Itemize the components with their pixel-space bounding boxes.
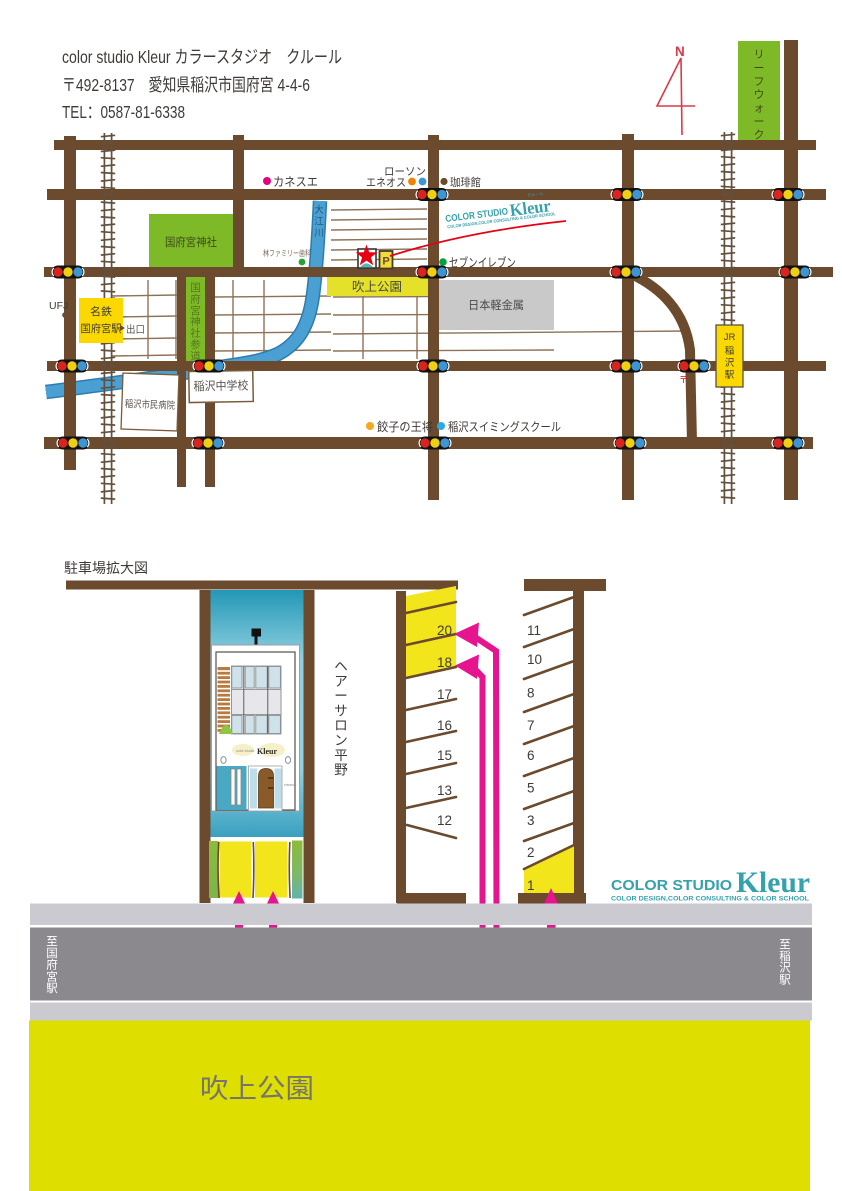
- svg-text:3: 3: [527, 813, 535, 828]
- svg-text:N: N: [675, 44, 685, 59]
- svg-text:日本軽金属: 日本軽金属: [468, 298, 524, 312]
- svg-text:ン: ン: [334, 733, 348, 748]
- svg-text:府: 府: [46, 958, 58, 972]
- svg-text:entrance: entrance: [284, 783, 297, 787]
- svg-text:稲: 稲: [725, 345, 735, 357]
- svg-text:〒492-8137 愛知県稲沢市国府宮 4-4-6: 〒492-8137 愛知県稲沢市国府宮 4-4-6: [62, 75, 310, 95]
- svg-text:稲沢中学校: 稲沢中学校: [193, 378, 248, 394]
- svg-text:ー: ー: [334, 689, 348, 704]
- svg-text:稲: 稲: [779, 950, 791, 963]
- svg-text:国府宮神社: 国府宮神社: [165, 235, 217, 249]
- svg-text:府: 府: [190, 292, 201, 305]
- svg-text:大: 大: [314, 204, 324, 216]
- svg-text:珈琲館: 珈琲館: [450, 175, 481, 189]
- svg-text:ー: ー: [754, 116, 765, 128]
- svg-text:国: 国: [190, 282, 201, 294]
- svg-text:ヘ: ヘ: [334, 659, 348, 674]
- svg-text:P: P: [382, 256, 389, 268]
- svg-text:ウ: ウ: [754, 88, 765, 101]
- svg-text:13: 13: [437, 783, 452, 798]
- svg-text:カネスエ: カネスエ: [273, 175, 318, 189]
- svg-text:7: 7: [527, 718, 535, 733]
- svg-text:川: 川: [314, 228, 324, 239]
- svg-text:国: 国: [46, 947, 58, 960]
- svg-text:5: 5: [527, 781, 535, 796]
- svg-text:餃子の王将: 餃子の王将: [377, 419, 433, 434]
- svg-text:color studio: color studio: [236, 749, 254, 753]
- svg-text:駅: 駅: [46, 982, 58, 995]
- svg-text:〒: 〒: [679, 375, 688, 385]
- svg-text:Kleur: Kleur: [736, 866, 810, 899]
- svg-text:COLOR DESIGN,COLOR CONSULTING: COLOR DESIGN,COLOR CONSULTING & COLOR SC…: [611, 896, 809, 903]
- svg-text:6: 6: [527, 748, 535, 763]
- svg-text:15: 15: [437, 748, 452, 763]
- svg-text:Kleur: Kleur: [257, 747, 277, 756]
- svg-text:駅: 駅: [725, 370, 735, 381]
- svg-text:沢: 沢: [725, 357, 735, 369]
- svg-text:林ファミリー歯科: 林ファミリー歯科: [263, 248, 311, 258]
- svg-text:名鉄: 名鉄: [90, 305, 113, 318]
- svg-text:セブンイレブン: セブンイレブン: [449, 255, 516, 270]
- svg-text:1: 1: [527, 878, 535, 893]
- svg-text:稲沢スイミングスクール: 稲沢スイミングスクール: [448, 420, 561, 434]
- svg-text:2: 2: [527, 845, 535, 860]
- svg-text:駅: 駅: [779, 973, 791, 986]
- svg-text:宮: 宮: [46, 969, 58, 983]
- svg-text:8: 8: [527, 686, 535, 701]
- svg-text:COLOR STUDIO: COLOR STUDIO: [611, 878, 732, 894]
- svg-text:至: 至: [46, 936, 58, 948]
- svg-text:ク: ク: [754, 128, 765, 141]
- svg-text:UFJ: UFJ: [49, 300, 68, 312]
- svg-text:ォ: ォ: [754, 103, 765, 115]
- svg-text:吹上公園: 吹上公園: [352, 280, 402, 294]
- svg-text:17: 17: [437, 687, 452, 702]
- svg-text:JR: JR: [724, 332, 736, 343]
- svg-text:ア: ア: [334, 674, 348, 689]
- svg-text:至: 至: [779, 939, 791, 951]
- svg-text:野: 野: [334, 763, 348, 778]
- svg-text:サ: サ: [334, 703, 348, 718]
- svg-text:神: 神: [190, 315, 201, 328]
- svg-text:参: 参: [190, 338, 201, 351]
- svg-text:11: 11: [527, 623, 541, 638]
- svg-text:TEL：0587-81-6338: TEL：0587-81-6338: [62, 102, 185, 122]
- svg-text:エネオス: エネオス: [366, 176, 406, 189]
- svg-text:10: 10: [527, 652, 542, 667]
- svg-text:20: 20: [437, 623, 452, 638]
- svg-text:江: 江: [314, 217, 324, 228]
- svg-text:color studio Kleur カラースタジオ クルー: color studio Kleur カラースタジオ クルール: [62, 47, 342, 67]
- svg-text:宮: 宮: [190, 304, 201, 317]
- svg-text:ー: ー: [754, 62, 765, 74]
- svg-text:16: 16: [437, 718, 452, 733]
- svg-text:平: 平: [334, 748, 348, 763]
- svg-text:駐車場拡大図: 駐車場拡大図: [64, 560, 148, 576]
- svg-text:出口: 出口: [126, 323, 145, 336]
- svg-text:12: 12: [437, 813, 452, 828]
- svg-text:国府宮駅: 国府宮駅: [81, 322, 122, 335]
- svg-text:社: 社: [190, 327, 201, 340]
- svg-text:フ: フ: [754, 76, 765, 88]
- svg-text:ロ: ロ: [334, 718, 348, 733]
- svg-text:沢: 沢: [779, 961, 791, 975]
- svg-text:吹上公園: 吹上公園: [200, 1074, 314, 1104]
- svg-text:18: 18: [437, 655, 452, 670]
- svg-text:リ: リ: [754, 49, 765, 61]
